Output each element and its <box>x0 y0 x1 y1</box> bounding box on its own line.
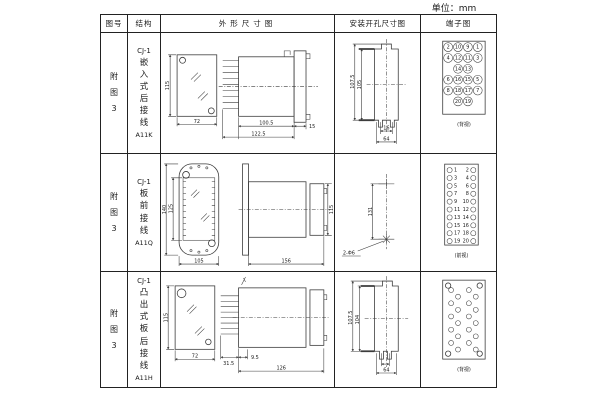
terminal-number: 16 <box>455 77 461 83</box>
front-view: 140 125 105 <box>162 164 219 266</box>
terminal-number: 6 <box>466 183 469 189</box>
dim-label: 131 <box>368 207 374 216</box>
fig-no-label: 附图3 <box>110 306 118 354</box>
terminal-socket-rear: 2 10 9 1 4 12 11 3 14 13 6 16 15 5 8 18 <box>443 41 485 128</box>
outline-drawing-a11h: 115 72 31.5 9.5 126 <box>161 272 334 387</box>
model-prefix: CJ-1 <box>137 178 151 186</box>
view-label: (背视) <box>457 121 471 128</box>
dimension-table: 图号 结构 外形尺寸图 安装开孔尺寸图 端子图 附图3 CJ-1 嵌入式后接线 … <box>100 14 497 388</box>
install-cell-a11q: 131 2-Φ6 <box>335 154 421 272</box>
terminal-number: 10 <box>463 199 469 205</box>
install-drawing-a11h: 107.5 104 64 <box>335 272 420 387</box>
terminal-number: 10 <box>455 45 461 51</box>
dim-label: 72 <box>194 119 200 125</box>
terminal-number: 8 <box>447 88 450 94</box>
terminal-cell-a11k: 2 10 9 1 4 12 11 3 14 13 6 16 15 5 8 18 <box>421 33 497 154</box>
terminal-number: 17 <box>465 88 471 94</box>
terminal-number: 17 <box>454 231 460 237</box>
terminal-number: 11 <box>454 207 460 213</box>
fig-no-label: 附图3 <box>110 189 118 237</box>
terminal-number: 20 <box>455 99 461 105</box>
terminal-number: 18 <box>463 231 469 237</box>
structure-cell-a11q: CJ-1 板前接线 A11Q <box>128 154 161 272</box>
dim-label: 72 <box>192 354 198 360</box>
dim-label: 125 <box>169 204 175 213</box>
terminal-number: 9 <box>466 45 469 51</box>
front-view: 115 72 <box>165 55 217 126</box>
dim-label: 104 <box>355 315 361 324</box>
drawing-sheet: 单位：mm 图号 结构 外形尺寸图 安装开孔尺寸图 端子图 附图3 CJ-1 嵌… <box>0 0 600 400</box>
terminal-number: 18 <box>455 88 461 94</box>
terminal-number: 3 <box>454 175 457 181</box>
structure-cell-a11h: CJ-1 凸出式板后接线 A11H <box>128 272 161 388</box>
dim-label: 105 <box>194 259 203 265</box>
terminal-number: 20 <box>463 239 469 245</box>
terminal-number: 15 <box>465 77 471 83</box>
dim-label: 64 <box>383 136 389 142</box>
fig-no-label: 附图3 <box>110 69 118 117</box>
terminal-number: 14 <box>463 215 469 221</box>
cutout-view: 107.5 104 64 <box>348 276 408 375</box>
fig-no-cell-a11q: 附图3 <box>101 154 128 272</box>
model-code: A11H <box>135 374 153 382</box>
model-prefix: CJ-1 <box>137 47 151 55</box>
dim-label: 107.5 <box>350 75 356 89</box>
side-view: 100.5 15 122.5 <box>219 51 318 139</box>
terminal-number: 2 <box>466 168 469 174</box>
install-cell-a11h: 107.5 104 64 <box>335 272 421 388</box>
terminal-socket-rear: (背视) <box>443 280 485 373</box>
terminal-number: 7 <box>476 88 479 94</box>
dim-label: 16 <box>383 126 389 132</box>
dim-label: 15 <box>309 124 315 130</box>
terminal-number: 7 <box>454 191 457 197</box>
structure-name: 板前接线 <box>140 188 149 236</box>
terminal-number: 3 <box>476 56 479 62</box>
dim-label: 31.5 <box>223 361 234 367</box>
fig-no-cell-a11k: 附图3 <box>101 33 128 154</box>
dim-label: 105 <box>357 80 363 89</box>
dim-label: 100.5 <box>259 121 273 127</box>
terminal-number: 1 <box>454 168 457 174</box>
outline-cell-a11h: 115 72 31.5 9.5 126 <box>161 272 335 388</box>
outline-drawing-a11k: 115 72 100.5 15 122.5 <box>161 33 334 153</box>
dim-label: 115 <box>329 205 334 214</box>
terminal-socket-front: 1 3 5 7 9 11 13 15 17 19 2 4 6 8 10 12 1 <box>445 164 479 259</box>
terminal-number: 4 <box>466 175 469 181</box>
structure-cell-a11k: CJ-1 嵌入式后接线 A11K <box>128 33 161 154</box>
structure-name: 嵌入式后接线 <box>140 57 149 129</box>
model-prefix: CJ-1 <box>137 277 151 285</box>
terminal-number: 8 <box>466 191 469 197</box>
terminal-cell-a11q: 1 3 5 7 9 11 13 15 17 19 2 4 6 8 10 12 1 <box>421 154 497 272</box>
dim-label: 122.5 <box>251 132 265 138</box>
col-header-outline: 外形尺寸图 <box>161 15 335 33</box>
terminal-number: 6 <box>447 77 450 83</box>
terminal-number: 13 <box>465 66 471 72</box>
col-header-terminal: 端子图 <box>421 15 497 33</box>
side-view: 156 115 <box>239 164 334 266</box>
terminal-number: 15 <box>454 223 460 229</box>
terminal-diagram-a11h: (背视) <box>421 272 496 387</box>
outline-cell-a11k: 115 72 100.5 15 122.5 <box>161 33 335 154</box>
hole-layout: 131 2-Φ6 <box>342 174 394 257</box>
terminal-number: 13 <box>454 215 460 221</box>
terminal-number: 5 <box>454 183 457 189</box>
install-drawing-a11k: 107.5 105 16 64 <box>335 33 420 153</box>
outline-cell-a11q: 140 125 105 156 115 <box>161 154 335 272</box>
terminal-number: 14 <box>455 66 461 72</box>
terminal-number: 16 <box>463 223 469 229</box>
model-code: A11Q <box>135 239 153 247</box>
terminal-number: 11 <box>465 56 471 62</box>
terminal-number: 1 <box>476 45 479 51</box>
hole-note: 2-Φ6 <box>343 251 355 257</box>
terminal-number: 19 <box>465 99 471 105</box>
unit-label: 单位：mm <box>408 1 500 14</box>
terminal-number: 9 <box>454 199 457 205</box>
dim-label: 115 <box>163 313 169 322</box>
outline-drawing-a11q: 140 125 105 156 115 <box>161 154 334 271</box>
dim-label: 140 <box>162 205 168 214</box>
cutout-view: 107.5 105 16 64 <box>350 39 406 144</box>
side-view: 31.5 9.5 126 <box>221 277 330 373</box>
dim-label: 9.5 <box>251 355 259 361</box>
install-drawing-a11q: 131 2-Φ6 <box>335 154 420 271</box>
structure-name: 凸出式板后接线 <box>140 287 149 371</box>
dim-label: 126 <box>276 366 285 372</box>
model-code: A11K <box>136 131 153 139</box>
dim-label: 115 <box>165 81 171 90</box>
terminal-number: 5 <box>476 77 479 83</box>
col-header-fig-no: 图号 <box>101 15 128 33</box>
col-header-structure: 结构 <box>128 15 161 33</box>
terminal-number: 12 <box>455 56 461 62</box>
front-view: 115 72 <box>163 286 214 361</box>
fig-no-cell-a11h: 附图3 <box>101 272 128 388</box>
terminal-cell-a11h: (背视) <box>421 272 497 388</box>
terminal-diagram-a11k: 2 10 9 1 4 12 11 3 14 13 6 16 15 5 8 18 <box>421 33 496 153</box>
terminal-number: 2 <box>447 45 450 51</box>
terminal-number: 19 <box>454 239 460 245</box>
dim-label: 107.5 <box>348 311 354 325</box>
view-label: (背视) <box>457 366 471 373</box>
terminal-diagram-a11q: 1 3 5 7 9 11 13 15 17 19 2 4 6 8 10 12 1 <box>421 154 496 271</box>
dim-label: 156 <box>281 259 290 265</box>
col-header-install: 安装开孔尺寸图 <box>335 15 421 33</box>
terminal-number: 4 <box>447 56 450 62</box>
terminal-number: 12 <box>463 207 469 213</box>
install-cell-a11k: 107.5 105 16 64 <box>335 33 421 154</box>
view-label: (前视) <box>455 252 469 259</box>
dim-label: 64 <box>383 368 389 374</box>
